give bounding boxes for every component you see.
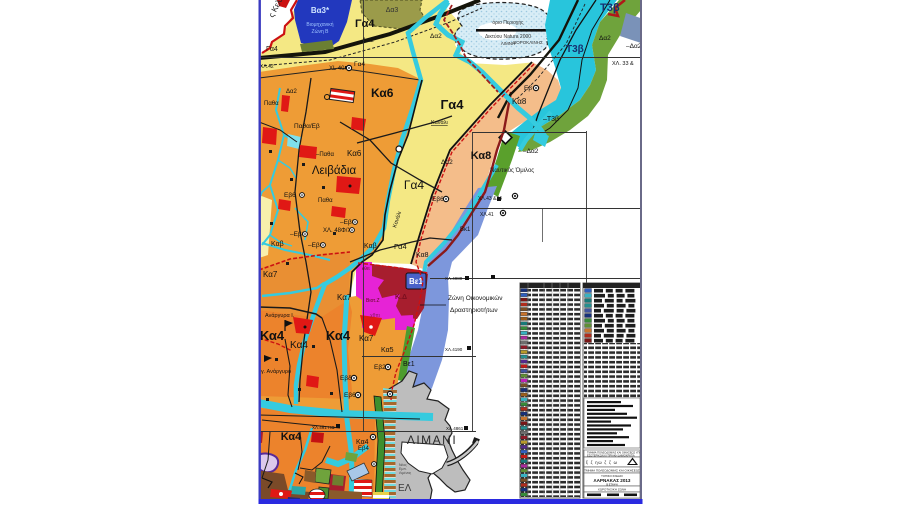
svg-text:Κα4: Κα4	[281, 431, 302, 443]
svg-text:Γα4: Γα4	[266, 46, 278, 53]
svg-text:Εβ6: Εβ6	[432, 196, 444, 203]
svg-text:Ζώνη Β: Ζώνη Β	[312, 28, 330, 35]
svg-text:Δα2: Δα2	[286, 89, 297, 95]
svg-text:Δα3: Δα3	[386, 7, 399, 14]
svg-text:Κα7: Κα7	[337, 293, 352, 302]
svg-text:XL 40: XL 40	[329, 66, 345, 72]
svg-text:όριο Περιοχής: όριο Περιοχής	[492, 19, 524, 26]
svg-text:–Δα2: –Δα2	[523, 148, 539, 155]
svg-text:Καβ: Καβ	[271, 241, 284, 248]
svg-text:Δραστηριοτήτων: Δραστηριοτήτων	[450, 307, 498, 314]
svg-text:ΧΛ. 33 &: ΧΛ. 33 &	[612, 61, 634, 67]
svg-text:Δα2: Δα2	[362, 37, 374, 44]
svg-text:Λιμένας: Λιμένας	[399, 471, 411, 475]
svg-text:Δα2: Δα2	[430, 33, 442, 40]
svg-text:ΤΜΗΜΑ ΠΟΛΕΟΔΟΜΙΑΣ ΚΑΙ ΟΙΚΗΣΕΩΣ: ΤΜΗΜΑ ΠΟΛΕΟΔΟΜΙΑΣ ΚΑΙ ΟΙΚΗΣΕΩΣ	[584, 468, 640, 472]
svg-text:Βε1: Βε1	[403, 361, 415, 368]
svg-text:Παθα: Παθα	[318, 198, 333, 204]
svg-text:Κα8: Κα8	[471, 150, 492, 162]
svg-text:Κα4: Κα4	[290, 340, 308, 351]
svg-text:Γα4: Γα4	[394, 242, 407, 251]
svg-text:Δικτύου Natura 2000: Δικτύου Natura 2000	[485, 33, 531, 40]
svg-text:Κα4: Κα4	[260, 328, 285, 343]
svg-text:Κανάλι: Κανάλι	[431, 119, 448, 126]
svg-text:Γα4: Γα4	[404, 178, 425, 192]
svg-text:Γα4: Γα4	[440, 97, 464, 112]
svg-text:ΧΩΡΟΤΑΞΙΚΗ ΖΩΝΗ: ΧΩΡΟΤΑΞΙΚΗ ΖΩΝΗ	[598, 487, 626, 491]
svg-text:χθπι: χθπι	[370, 313, 380, 319]
svg-text:κθπ: κθπ	[362, 266, 370, 271]
svg-text:Λειβάδια: Λειβάδια	[312, 165, 357, 177]
svg-text:Ναυτικός Όμιλος: Ναυτικός Όμιλος	[490, 167, 534, 174]
svg-text:Βα3*: Βα3*	[311, 6, 330, 15]
svg-text:Εβ2: Εβ2	[374, 364, 386, 371]
svg-text:ΧΛ.42: ΧΛ.42	[260, 64, 274, 70]
svg-text:–Τ3β: –Τ3β	[543, 116, 559, 123]
svg-text:Γα4: Γα4	[354, 61, 365, 68]
svg-text:ΧΛ.4861: ΧΛ.4861	[446, 426, 464, 431]
svg-text:Τ3β: Τ3β	[566, 44, 584, 55]
svg-text:Κα8: Κα8	[416, 252, 429, 259]
svg-text:ΛΑΡΝΑΚΑΣ 2013: ΛΑΡΝΑΚΑΣ 2013	[594, 478, 631, 483]
svg-text:ΧΛ.41: ΧΛ.41	[480, 212, 494, 218]
svg-text:Κα4: Κα4	[326, 328, 351, 343]
svg-text:ΧΛ.4190: ΧΛ.4190	[445, 347, 463, 352]
svg-text:ΧΛ.43 &34: ΧΛ.43 &34	[478, 196, 502, 202]
svg-text:Εβ6: Εβ6	[284, 192, 296, 199]
svg-text:Δα2: Δα2	[599, 35, 611, 42]
svg-text:Κα7: Κα7	[359, 334, 374, 343]
svg-text:–Δα2: –Δα2	[626, 43, 642, 50]
svg-text:ΧΛ.4980: ΧΛ.4980	[445, 276, 463, 281]
svg-text:Κα7: Κα7	[263, 270, 278, 279]
svg-text:Βιομηχανική: Βιομηχανική	[306, 21, 333, 28]
svg-text:ΧΛ. 48Φ/Χ: ΧΛ. 48Φ/Χ	[323, 228, 351, 234]
svg-text:Εβδ: Εβδ	[340, 375, 352, 382]
svg-text:Γα4: Γα4	[355, 18, 375, 30]
svg-text:Βκ1: Βκ1	[460, 227, 471, 233]
svg-text:Κα6: Κα6	[371, 86, 394, 100]
svg-text:Ανάργυρα Ι.: Ανάργυρα Ι.	[265, 312, 295, 319]
svg-text:Κα5: Κα5	[381, 347, 394, 354]
svg-text:Ζώνη Οικονομικών: Ζώνη Οικονομικών	[448, 294, 503, 302]
svg-text:Εβ4: Εβ4	[358, 446, 369, 452]
svg-text:Εβ: Εβ	[524, 85, 532, 92]
svg-text:Εβ6: Εβ6	[344, 392, 356, 399]
svg-text:Τ3β: Τ3β	[600, 2, 620, 14]
svg-text:Κα4: Κα4	[356, 439, 369, 446]
svg-text:Καβ: Καβ	[364, 243, 377, 250]
svg-text:Κ.Δ: Κ.Δ	[395, 294, 407, 301]
svg-text:ΛΙΜΑΝΙ: ΛΙΜΑΝΙ	[407, 433, 457, 447]
svg-text:Βιοτ.Ζ: Βιοτ.Ζ	[366, 298, 380, 304]
svg-text:ΕΛ: ΕΛ	[398, 483, 412, 494]
svg-text:–Παθα: –Παθα	[316, 152, 334, 158]
svg-text:ξ ζ ηω ζ ζ ω: ξ ζ ηω ζ ζ ω	[586, 460, 618, 465]
svg-text:Παθα/Εβ: Παθα/Εβ	[294, 123, 320, 130]
svg-text:Κα8: Κα8	[512, 97, 527, 106]
svg-text:Δα2: Δα2	[441, 159, 453, 166]
svg-text:Κα6: Κα6	[347, 149, 362, 158]
svg-text:γ. Ανάργυρο: γ. Ανάργυρο	[261, 368, 291, 375]
svg-text:ΧΛ.4θ1 ΗΩ: ΧΛ.4θ1 ΗΩ	[312, 425, 335, 430]
svg-text:ΒΟΡΟΚΛΙΝΗΣ: ΒΟΡΟΚΛΙΝΗΣ	[513, 40, 543, 45]
svg-text:Παθα: Παθα	[264, 101, 279, 107]
